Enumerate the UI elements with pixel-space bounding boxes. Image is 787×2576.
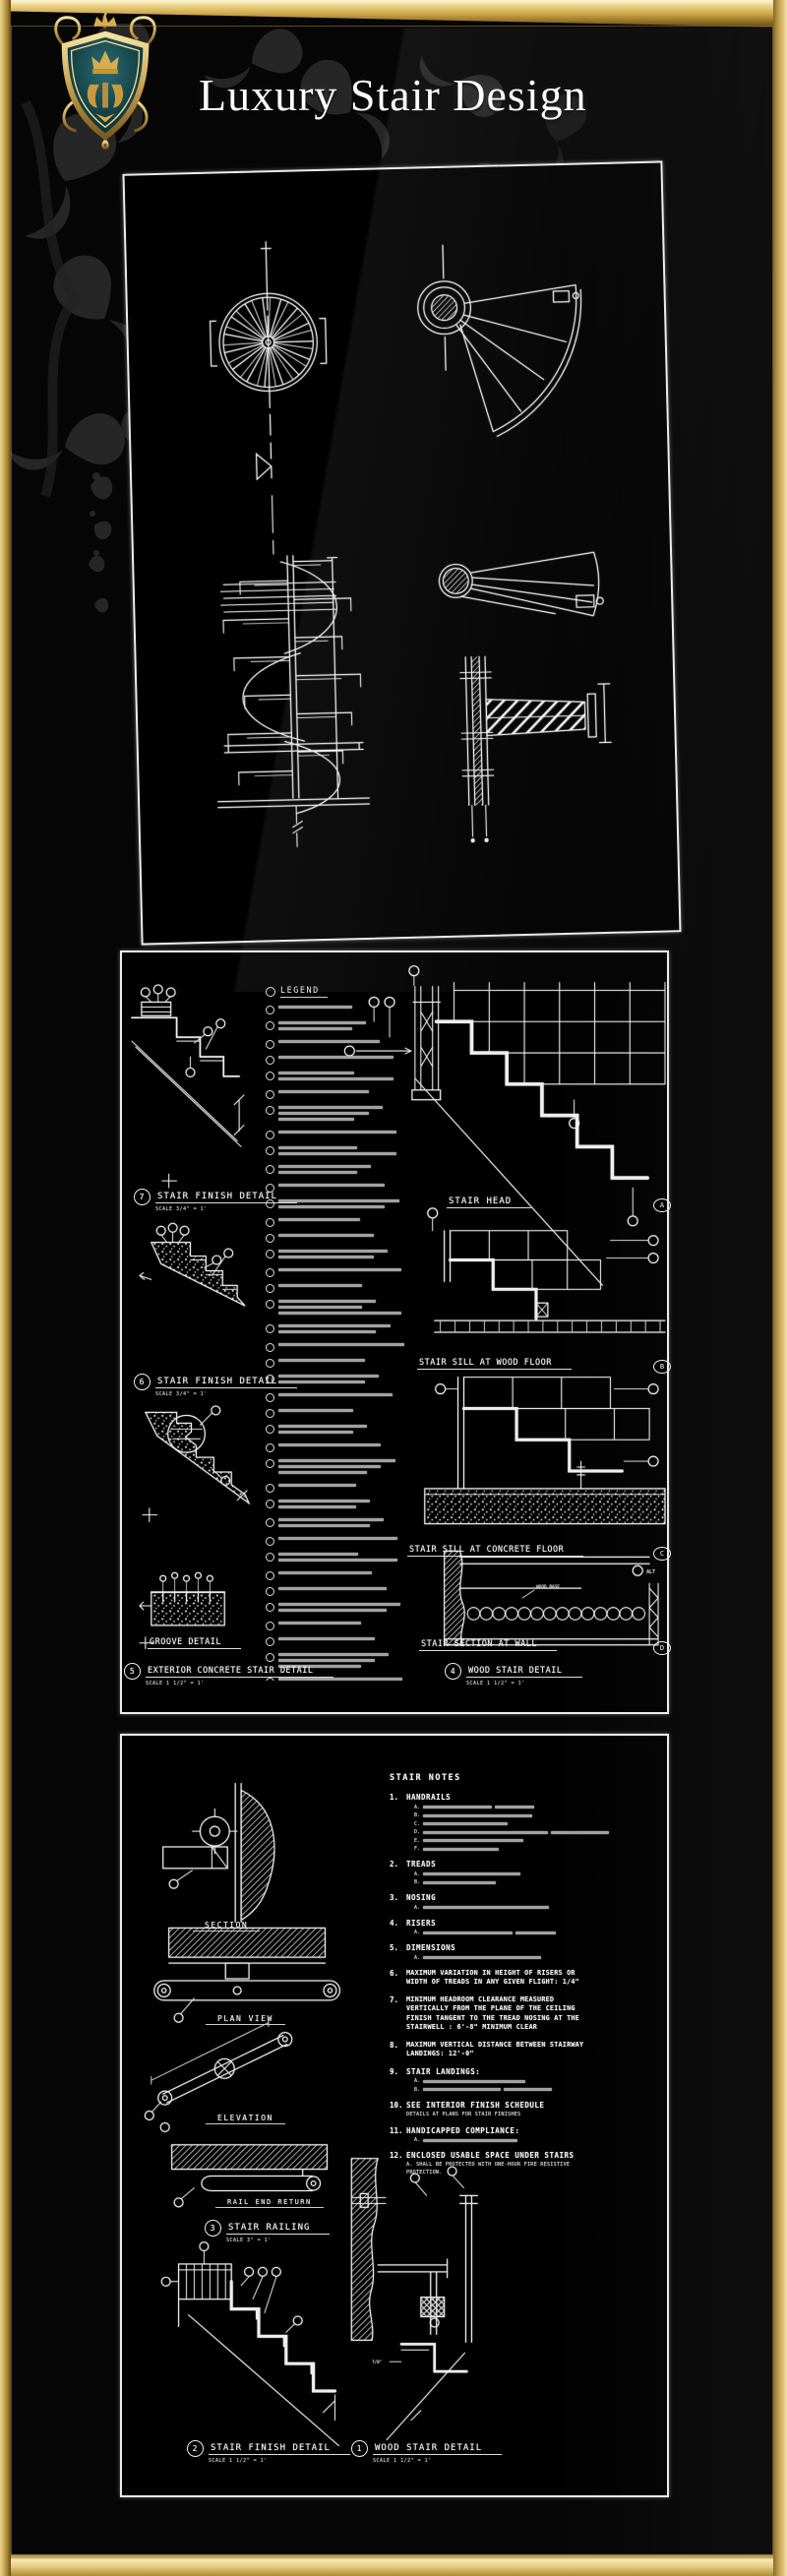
note-item: 3.NOSINGA.	[390, 1893, 594, 1911]
legend-item-number-icon	[266, 1603, 274, 1612]
note-item: 8.MAXIMUM VERTICAL DISTANCE BETWEEN STAI…	[390, 2041, 594, 2059]
handrail-plan-view-drawing	[154, 1928, 340, 2022]
legend-item-number-icon	[266, 1571, 274, 1580]
legend-item-number-icon	[266, 1637, 274, 1646]
stair-finish-detail-7-drawing	[132, 985, 244, 1188]
legend-item-number-icon	[266, 1106, 274, 1115]
wood-base-label: WOOD BASE	[536, 1584, 560, 1590]
panel-stair-railing-notes: 7/8" SECTION PLAN VIEW ELEVATION RAIL EN…	[120, 1734, 669, 2497]
note-subitem: A.	[414, 2078, 594, 2084]
legend-item-number-icon	[266, 1146, 274, 1155]
legend-item	[266, 1040, 405, 1049]
page-title: Luxury Stair Design	[199, 69, 587, 121]
legend-item	[266, 1268, 405, 1277]
legend-item	[266, 1603, 405, 1615]
note-item: 10.SEE INTERIOR FINISH SCHEDULEDETAILS A…	[390, 2101, 594, 2118]
note-title: HANDICAPPED COMPLIANCE:	[406, 2126, 594, 2135]
stair-notes: STAIR NOTES 1.HANDRAILSA.B.C.D.E.F.2.TRE…	[390, 1773, 594, 2184]
legend-item-number-icon	[266, 1587, 274, 1596]
note-subitem: E.	[414, 1838, 609, 1844]
exterior-concrete-stair-detail-drawing	[143, 1406, 249, 1522]
note-text: MINIMUM HEADROOM CLEARANCE MEASURED VERT…	[406, 1995, 594, 2033]
detail-title-6: 6STAIR FINISH DETAIL SCALE 3/4" = 1'	[134, 1374, 297, 1397]
product-image-stage: Luxury Stair Design	[0, 0, 787, 2576]
note-title: ENCLOSED USABLE SPACE UNDER STAIRS	[406, 2151, 594, 2160]
legend-item-number-icon	[266, 1072, 274, 1080]
legend-item-number-icon	[266, 1250, 274, 1258]
legend-item-number-icon	[266, 1006, 274, 1014]
note-text: MAXIMUM VARIATION IN HEIGHT OF RISERS OR…	[406, 1969, 594, 1988]
legend-item	[266, 1459, 405, 1477]
legend-item	[266, 1165, 405, 1177]
legend-item	[266, 1284, 405, 1293]
note-number: 9.	[390, 2067, 406, 2093]
note-item: 2.TREADSA.B.	[390, 1860, 594, 1885]
detail-title-3: 3STAIR RAILING SCALE 3" = 1'	[205, 2220, 330, 2243]
note-number: 11.	[390, 2126, 406, 2144]
note-number: 4.	[390, 1919, 406, 1936]
detail-title-1: 1WOOD STAIR DETAIL SCALE 1 1/2" = 1'	[351, 2440, 502, 2464]
legend-item	[266, 1324, 405, 1336]
legend-item-number-icon	[266, 1553, 274, 1562]
stair-finish-detail-6-drawing	[140, 1223, 245, 1306]
legend-item-number-icon	[266, 1021, 274, 1030]
note-item: 6.MAXIMUM VARIATION IN HEIGHT OF RISERS …	[390, 1969, 594, 1988]
wood-stair-detail-1-drawing: 7/8"	[351, 2159, 477, 2440]
legend-item	[266, 1571, 405, 1580]
note-subitem: C.	[414, 1821, 609, 1827]
fan-stair-plan-drawing	[416, 242, 584, 439]
legend-item	[266, 1250, 405, 1261]
note-subitem: F.	[414, 1846, 609, 1852]
note-number: 3.	[390, 1893, 406, 1911]
legend-item-number-icon	[266, 1653, 274, 1662]
plan-view-label: PLAN VIEW	[206, 2014, 285, 2025]
stair-sill-wood-floor-drawing	[428, 1208, 665, 1332]
legend-item	[266, 1218, 405, 1227]
legend-item-number-icon	[266, 1343, 274, 1352]
note-item: 9.STAIR LANDINGS:A.B.	[390, 2067, 594, 2093]
legend-title: LEGEND	[280, 986, 328, 998]
panel-spiral-stair-details	[123, 160, 682, 945]
legend-item	[266, 1409, 405, 1418]
note-title: SEE INTERIOR FINISH SCHEDULE	[406, 2101, 594, 2110]
legend: LEGEND	[266, 986, 405, 1681]
note-title: TREADS	[406, 1860, 594, 1869]
stair-sill-concrete-floor-drawing	[425, 1378, 665, 1524]
legend-item	[266, 1359, 405, 1368]
note-item: 7.MINIMUM HEADROOM CLEARANCE MEASURED VE…	[390, 1995, 594, 2033]
frame-right	[773, 0, 787, 2576]
legend-item	[266, 1131, 405, 1139]
detail-title-4: 4WOOD STAIR DETAIL SCALE 1 1/2" = 1'	[445, 1663, 582, 1687]
rail-end-return-label: RAIL END RETURN	[215, 2198, 324, 2208]
legend-header: LEGEND	[266, 986, 405, 998]
stair-finish-detail-2-drawing	[161, 2242, 338, 2446]
stair-sill-concrete-title: STAIR SILL AT CONCRETE FLOOR	[407, 1545, 583, 1557]
note-subitem: A.	[414, 1905, 594, 1911]
legend-item-number-icon	[266, 1425, 274, 1434]
note-item: 4.RISERSA.	[390, 1919, 594, 1936]
detail-title-7: 7STAIR FINISH DETAIL SCALE 3/4" = 1'	[134, 1189, 297, 1212]
note-number: 7.	[390, 1995, 406, 2033]
note-subitem: A.	[414, 1955, 594, 1961]
legend-item	[266, 1587, 405, 1596]
note-subtext: DETAILS AT PLANS FOR STAIR FINISHES	[406, 2112, 594, 2118]
detail-title-2: 2STAIR FINISH DETAIL SCALE 1 1/2" = 1'	[187, 2440, 350, 2464]
note-subitem: A.	[414, 1871, 594, 1877]
legend-item	[266, 1553, 405, 1564]
groove-detail-title: GROOVE DETAIL	[148, 1637, 241, 1649]
note-item: 12.ENCLOSED USABLE SPACE UNDER STAIRSA. …	[390, 2151, 594, 2177]
note-subitem: B.	[414, 2087, 594, 2093]
detail-marker-A: A	[653, 1198, 671, 1212]
stair-notes-title: STAIR NOTES	[390, 1773, 594, 1783]
note-item: 1.HANDRAILSA.B.C.D.E.F.	[390, 1793, 594, 1852]
legend-item-number-icon	[266, 1500, 274, 1508]
handrail-section-drawing	[163, 1783, 274, 1922]
note-subitem: A.	[414, 1805, 609, 1810]
legend-item	[266, 1006, 405, 1014]
note-subitem: B.	[414, 1812, 609, 1818]
note-number: 8.	[390, 2041, 406, 2059]
note-title: RISERS	[406, 1919, 594, 1928]
stair-section-at-wall-drawing: WOOD BASE ALT	[445, 1551, 658, 1644]
note-number: 2.	[390, 1860, 406, 1885]
note-subtext: A. SHALL BE PROTECTED WITH ONE-HOUR FIRE…	[406, 2162, 594, 2177]
note-subitem: D.	[414, 1829, 609, 1835]
spiral-stair-elevation-drawing	[210, 452, 371, 849]
note-number: 10.	[390, 2101, 406, 2118]
stair-sill-wood-title: STAIR SILL AT WOOD FLOOR	[417, 1358, 572, 1370]
note-item: 5.DIMENSIONSA.	[390, 1943, 594, 1961]
fan-tread-elevation-drawing	[439, 552, 604, 620]
legend-item-number-icon	[266, 1459, 274, 1468]
note-title: HANDRAILS	[406, 1793, 609, 1802]
detail-marker-D: D	[653, 1641, 671, 1655]
note-subitem: A.	[414, 1930, 594, 1935]
legend-item	[266, 1500, 405, 1511]
legend-item-number-icon	[266, 1518, 274, 1527]
frame-bottom	[0, 2554, 787, 2576]
panel-stair-finish-details: WOOD BASE ALT LEGEND 7STAIR FINISH DETAI…	[120, 951, 669, 1714]
spiral-stair-plan-drawing	[209, 240, 330, 479]
legend-item	[266, 1484, 405, 1493]
elevation-label: ELEVATION	[206, 2114, 285, 2124]
legend-item	[266, 1425, 405, 1437]
note-text: MAXIMUM VERTICAL DISTANCE BETWEEN STAIRW…	[406, 2041, 594, 2059]
legend-item-number-icon	[266, 1234, 274, 1243]
legend-item-number-icon	[266, 1090, 274, 1099]
legend-item	[266, 1343, 405, 1352]
legend-item	[266, 1072, 405, 1083]
legend-item	[266, 1622, 405, 1630]
note-title: NOSING	[406, 1893, 594, 1902]
tread-bracket-section-drawing	[459, 653, 613, 842]
note-number: 5.	[390, 1943, 406, 1961]
legend-item-number-icon	[266, 1268, 274, 1277]
detail-marker-C: C	[653, 1547, 671, 1561]
legend-item-number-icon	[266, 1284, 274, 1293]
note-number: 12.	[390, 2151, 406, 2177]
stair-section-wall-title: STAIR SECTION AT WALL	[419, 1639, 557, 1651]
note-title: STAIR LANDINGS:	[406, 2067, 594, 2076]
legend-item-number-icon	[266, 1409, 274, 1418]
legend-item-number-icon	[266, 1537, 274, 1546]
legend-item-number-icon	[266, 1218, 274, 1227]
legend-item	[266, 1537, 405, 1546]
legend-item-number-icon	[266, 1324, 274, 1333]
legend-item-number-icon	[266, 1622, 274, 1630]
legend-item	[266, 1146, 405, 1158]
detail-title-5: 5EXTERIOR CONCRETE STAIR DETAIL SCALE 1 …	[124, 1663, 333, 1687]
legend-item-number-icon	[266, 1165, 274, 1174]
detail-marker-B: B	[653, 1360, 671, 1374]
section-label: SECTION	[193, 1921, 260, 1932]
legend-item	[266, 1300, 405, 1318]
note-item: 11.HANDICAPPED COMPLIANCE:A.	[390, 2126, 594, 2144]
legend-item-number-icon	[266, 1040, 274, 1049]
note-title: DIMENSIONS	[406, 1943, 594, 1952]
legend-item	[266, 1637, 405, 1646]
legend-item-number-icon	[266, 1300, 274, 1309]
legend-key-icon	[266, 987, 275, 997]
note-subitem: A.	[414, 2137, 594, 2143]
legend-item	[266, 1443, 405, 1452]
legend-item	[266, 1021, 405, 1033]
note-number: 6.	[390, 1969, 406, 1988]
legend-item-number-icon	[266, 1443, 274, 1452]
note-number: 1.	[390, 1793, 406, 1852]
stair-head-title: STAIR HEAD	[447, 1196, 531, 1208]
seven-eighths-label: 7/8"	[372, 2360, 382, 2364]
legend-item	[266, 1234, 405, 1243]
legend-item-number-icon	[266, 1131, 274, 1139]
spiral-stair-drawings	[125, 162, 680, 943]
legend-item	[266, 1518, 405, 1530]
legend-item	[266, 1106, 405, 1124]
crest-logo-icon	[47, 4, 163, 153]
note-subitem: B.	[414, 1879, 594, 1885]
legend-item-number-icon	[266, 1359, 274, 1368]
legend-item-number-icon	[266, 1056, 274, 1065]
alt-label: ALT	[646, 1569, 655, 1575]
legend-item	[266, 1056, 405, 1065]
legend-item-number-icon	[266, 1484, 274, 1493]
legend-item	[266, 1090, 405, 1099]
